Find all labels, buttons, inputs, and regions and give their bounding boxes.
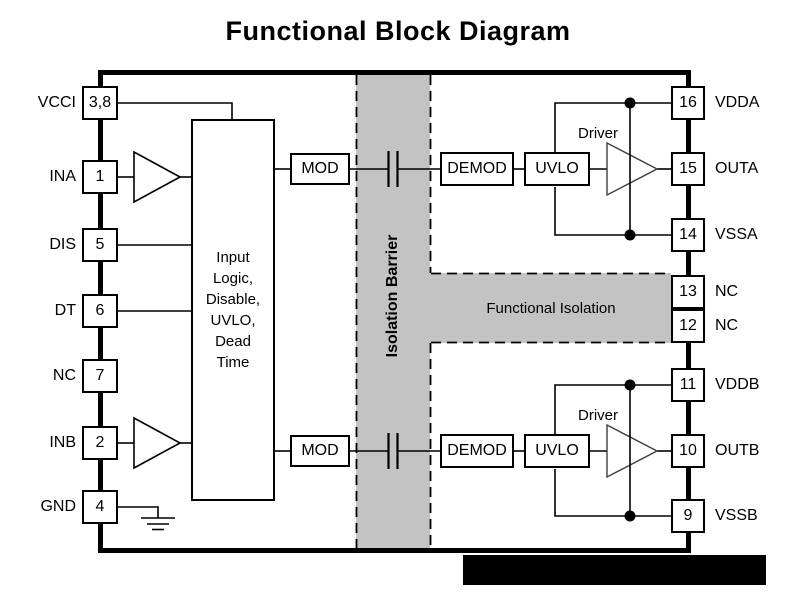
pin-number: 15	[679, 161, 697, 177]
redacted-footer-bar	[463, 555, 766, 585]
uvlo-b-block: UVLO	[524, 434, 590, 468]
pin-number: 16	[679, 95, 697, 111]
pin-box-dis: 5	[82, 228, 118, 262]
pin-label-dt: DT	[8, 301, 76, 321]
driver-b-triangle-icon	[607, 425, 657, 477]
pin-box-ina: 1	[82, 160, 118, 194]
pin-number: 14	[679, 227, 697, 243]
pin-box-vssb: 9	[671, 499, 705, 533]
driver-a-label: Driver	[558, 125, 638, 142]
pin-number: 1	[96, 169, 105, 185]
pin-box-outa: 15	[671, 152, 705, 186]
pin-box-inb: 2	[82, 426, 118, 460]
pin-number: 3,8	[89, 95, 111, 111]
pin-box-nc7: 7	[82, 359, 118, 393]
pin-label-nc12: NC	[715, 316, 791, 336]
pin-label-vssa: VSSA	[715, 225, 791, 245]
pin-box-nc12: 12	[671, 309, 705, 343]
pin-number: 7	[96, 368, 105, 384]
pin-box-vssa: 14	[671, 218, 705, 252]
pin-box-nc13: 13	[671, 275, 705, 309]
pin-box-outb: 10	[671, 434, 705, 468]
pin-label-ina: INA	[8, 167, 76, 187]
pin-box-dt: 6	[82, 294, 118, 328]
driver-b-label: Driver	[558, 407, 638, 424]
pin-label-vssb: VSSB	[715, 506, 791, 526]
demod-b-block: DEMOD	[440, 434, 514, 468]
ina-buffer-icon	[134, 152, 180, 202]
pin-number: 5	[96, 237, 105, 253]
driver-a-triangle-icon	[607, 143, 657, 195]
pin-number: 12	[679, 318, 697, 334]
pin-box-gnd: 4	[82, 490, 118, 524]
pin-box-vddb: 11	[671, 368, 705, 402]
pin-number: 2	[96, 435, 105, 451]
input-logic-block: Input Logic, Disable, UVLO, Dead Time	[191, 119, 275, 501]
pin-label-vdda: VDDA	[715, 93, 791, 113]
pin-box-vcci: 3,8	[82, 86, 118, 120]
pin-label-outa: OUTA	[715, 159, 791, 179]
pin-label-inb: INB	[8, 433, 76, 453]
demod-a-block: DEMOD	[440, 152, 514, 186]
pin-number: 6	[96, 303, 105, 319]
pin-label-nc13: NC	[715, 282, 791, 302]
pin-number: 9	[684, 508, 693, 524]
pin-number: 13	[679, 284, 697, 300]
pin-number: 11	[680, 377, 697, 393]
ground-icon	[141, 518, 175, 530]
inb-buffer-icon	[134, 418, 180, 468]
pin-label-vcci: VCCI	[8, 93, 76, 113]
pin-label-outb: OUTB	[715, 441, 791, 461]
pin-label-vddb: VDDB	[715, 375, 791, 395]
pin-label-dis: DIS	[8, 235, 76, 255]
functional-block-diagram: Functional Block Diagram	[0, 0, 796, 616]
pin-label-nc7: NC	[8, 366, 76, 386]
functional-isolation-label: Functional Isolation	[451, 300, 651, 317]
isolation-barrier-label: Isolation Barrier	[382, 216, 404, 376]
uvlo-a-block: UVLO	[524, 152, 590, 186]
pin-box-vdda: 16	[671, 86, 705, 120]
pin-number: 4	[96, 499, 105, 515]
pin-label-gnd: GND	[8, 497, 76, 517]
pin-number: 10	[679, 443, 697, 459]
mod-a-block: MOD	[290, 153, 350, 185]
mod-b-block: MOD	[290, 435, 350, 467]
